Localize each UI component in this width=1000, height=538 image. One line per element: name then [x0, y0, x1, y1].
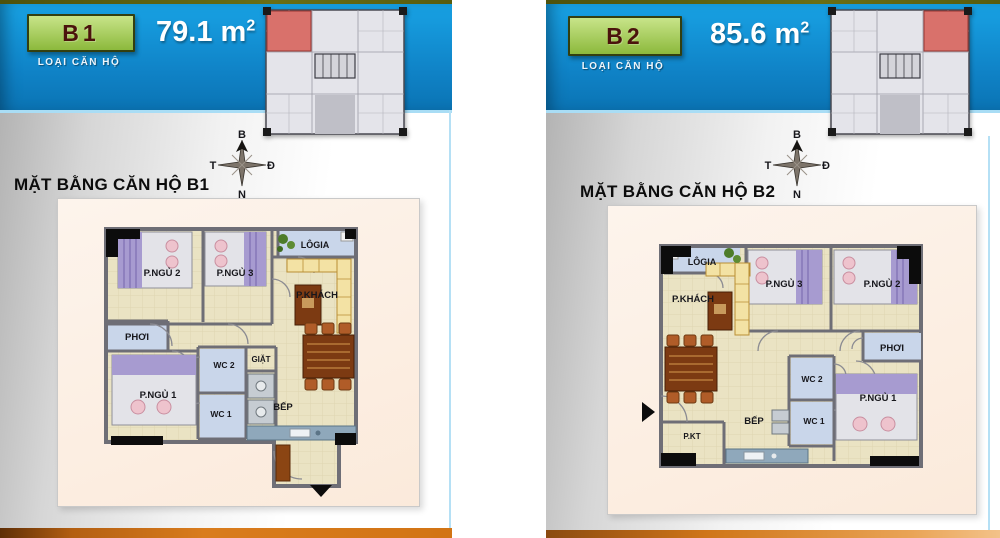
room-label-bedroom2: P.NGỦ 2: [144, 267, 181, 279]
unit-panel-b1: B1 LOẠI CĂN HỘ 79.1 m2 B T Đ N MẶT BẰNG …: [0, 0, 452, 538]
area-unit: m: [775, 18, 801, 50]
floor-plan-container-b1: P.NGỦ 2 P.NGỦ 3 LÔGIA P.KHÁCH PHƠI WC 2 …: [57, 198, 420, 507]
room-label-laundry: GIẶT: [251, 355, 270, 364]
highlighted-unit: [924, 11, 968, 51]
room-label-bedroom1: P.NGỦ 1: [140, 389, 178, 401]
bottom-orange-bar: [546, 530, 1000, 538]
compass-west-label: T: [210, 160, 217, 172]
room-label-bedroom3: P.NGỦ 3: [217, 267, 254, 279]
area-unit: m: [221, 16, 247, 48]
compass-north-label: B: [238, 129, 246, 141]
room-wc2: [200, 349, 246, 393]
highlighted-unit: [267, 11, 311, 51]
unit-type-caption: LOẠI CĂN HỘ: [558, 61, 688, 72]
area-value: 79.1: [156, 16, 212, 48]
plan-title: MẶT BẰNG CĂN HỘ B1: [14, 175, 209, 195]
room-label-bedroom3: P.NGỦ 3: [766, 278, 803, 290]
core-block: [315, 95, 355, 134]
panel-edge-line: [449, 110, 451, 528]
room-label-bedroom2: P.NGỦ 2: [864, 278, 901, 290]
building-key-plan-b2: [828, 5, 973, 138]
unit-badge: B2: [568, 16, 682, 56]
floor-plan-b2: LÔGIA P.KHÁCH P.NGỦ 3 P.NGỦ 2 PHƠI WC 2 …: [608, 206, 976, 514]
floor-plan-b1: P.NGỦ 2 P.NGỦ 3 LÔGIA P.KHÁCH PHƠI WC 2 …: [58, 199, 419, 506]
compass-rose: B T Đ N: [206, 128, 278, 200]
core-block: [880, 95, 920, 134]
room-label-wc1: WC 1: [803, 416, 825, 426]
room-label-kitchen: BẾP: [273, 402, 293, 413]
room-label-bedroom1: P.NGỦ 1: [860, 392, 898, 404]
panel-edge-line: [988, 136, 990, 530]
room-label-wc2: WC 2: [801, 374, 823, 384]
room-label-loggia: LÔGIA: [688, 256, 717, 267]
floor-plan-container-b2: LÔGIA P.KHÁCH P.NGỦ 3 P.NGỦ 2 PHƠI WC 2 …: [607, 205, 977, 515]
entry-arrow: [310, 485, 332, 497]
compass-east-label: Đ: [267, 160, 275, 172]
compass-south-label: N: [793, 189, 801, 200]
compass-north-label: B: [793, 129, 801, 141]
room-label-tech: P.KT: [683, 432, 700, 441]
unit-badge: B1: [27, 14, 135, 52]
room-label-drying: PHƠI: [880, 343, 904, 354]
room-label-wc1: WC 1: [210, 409, 232, 419]
room-label-kitchen: BẾP: [744, 416, 764, 427]
area-superscript: 2: [246, 17, 255, 34]
area-superscript: 2: [800, 19, 809, 36]
room-label-drying: PHƠI: [125, 332, 149, 343]
room-label-living: P.KHÁCH: [672, 294, 714, 305]
building-key-plan-b1: [263, 5, 408, 138]
entry-arrow: [642, 402, 655, 422]
unit-panel-b2: B2 LOẠI CĂN HỘ 85.6 m2 B T Đ N MẶT BẰNG …: [546, 0, 1000, 538]
bottom-orange-bar: [0, 528, 452, 538]
plan-title: MẶT BẰNG CĂN HỘ B2: [580, 182, 775, 202]
room-label-loggia: LÔGIA: [301, 239, 330, 250]
area-value: 85.6: [710, 18, 766, 50]
unit-type-caption: LOẠI CĂN HỘ: [17, 57, 141, 68]
compass-east-label: Đ: [822, 160, 830, 172]
compass-west-label: T: [765, 160, 772, 172]
unit-area: 85.6 m2: [710, 18, 809, 51]
unit-area: 79.1 m2: [156, 16, 255, 49]
room-label-wc2: WC 2: [213, 360, 235, 370]
room-label-living: P.KHÁCH: [296, 290, 338, 301]
